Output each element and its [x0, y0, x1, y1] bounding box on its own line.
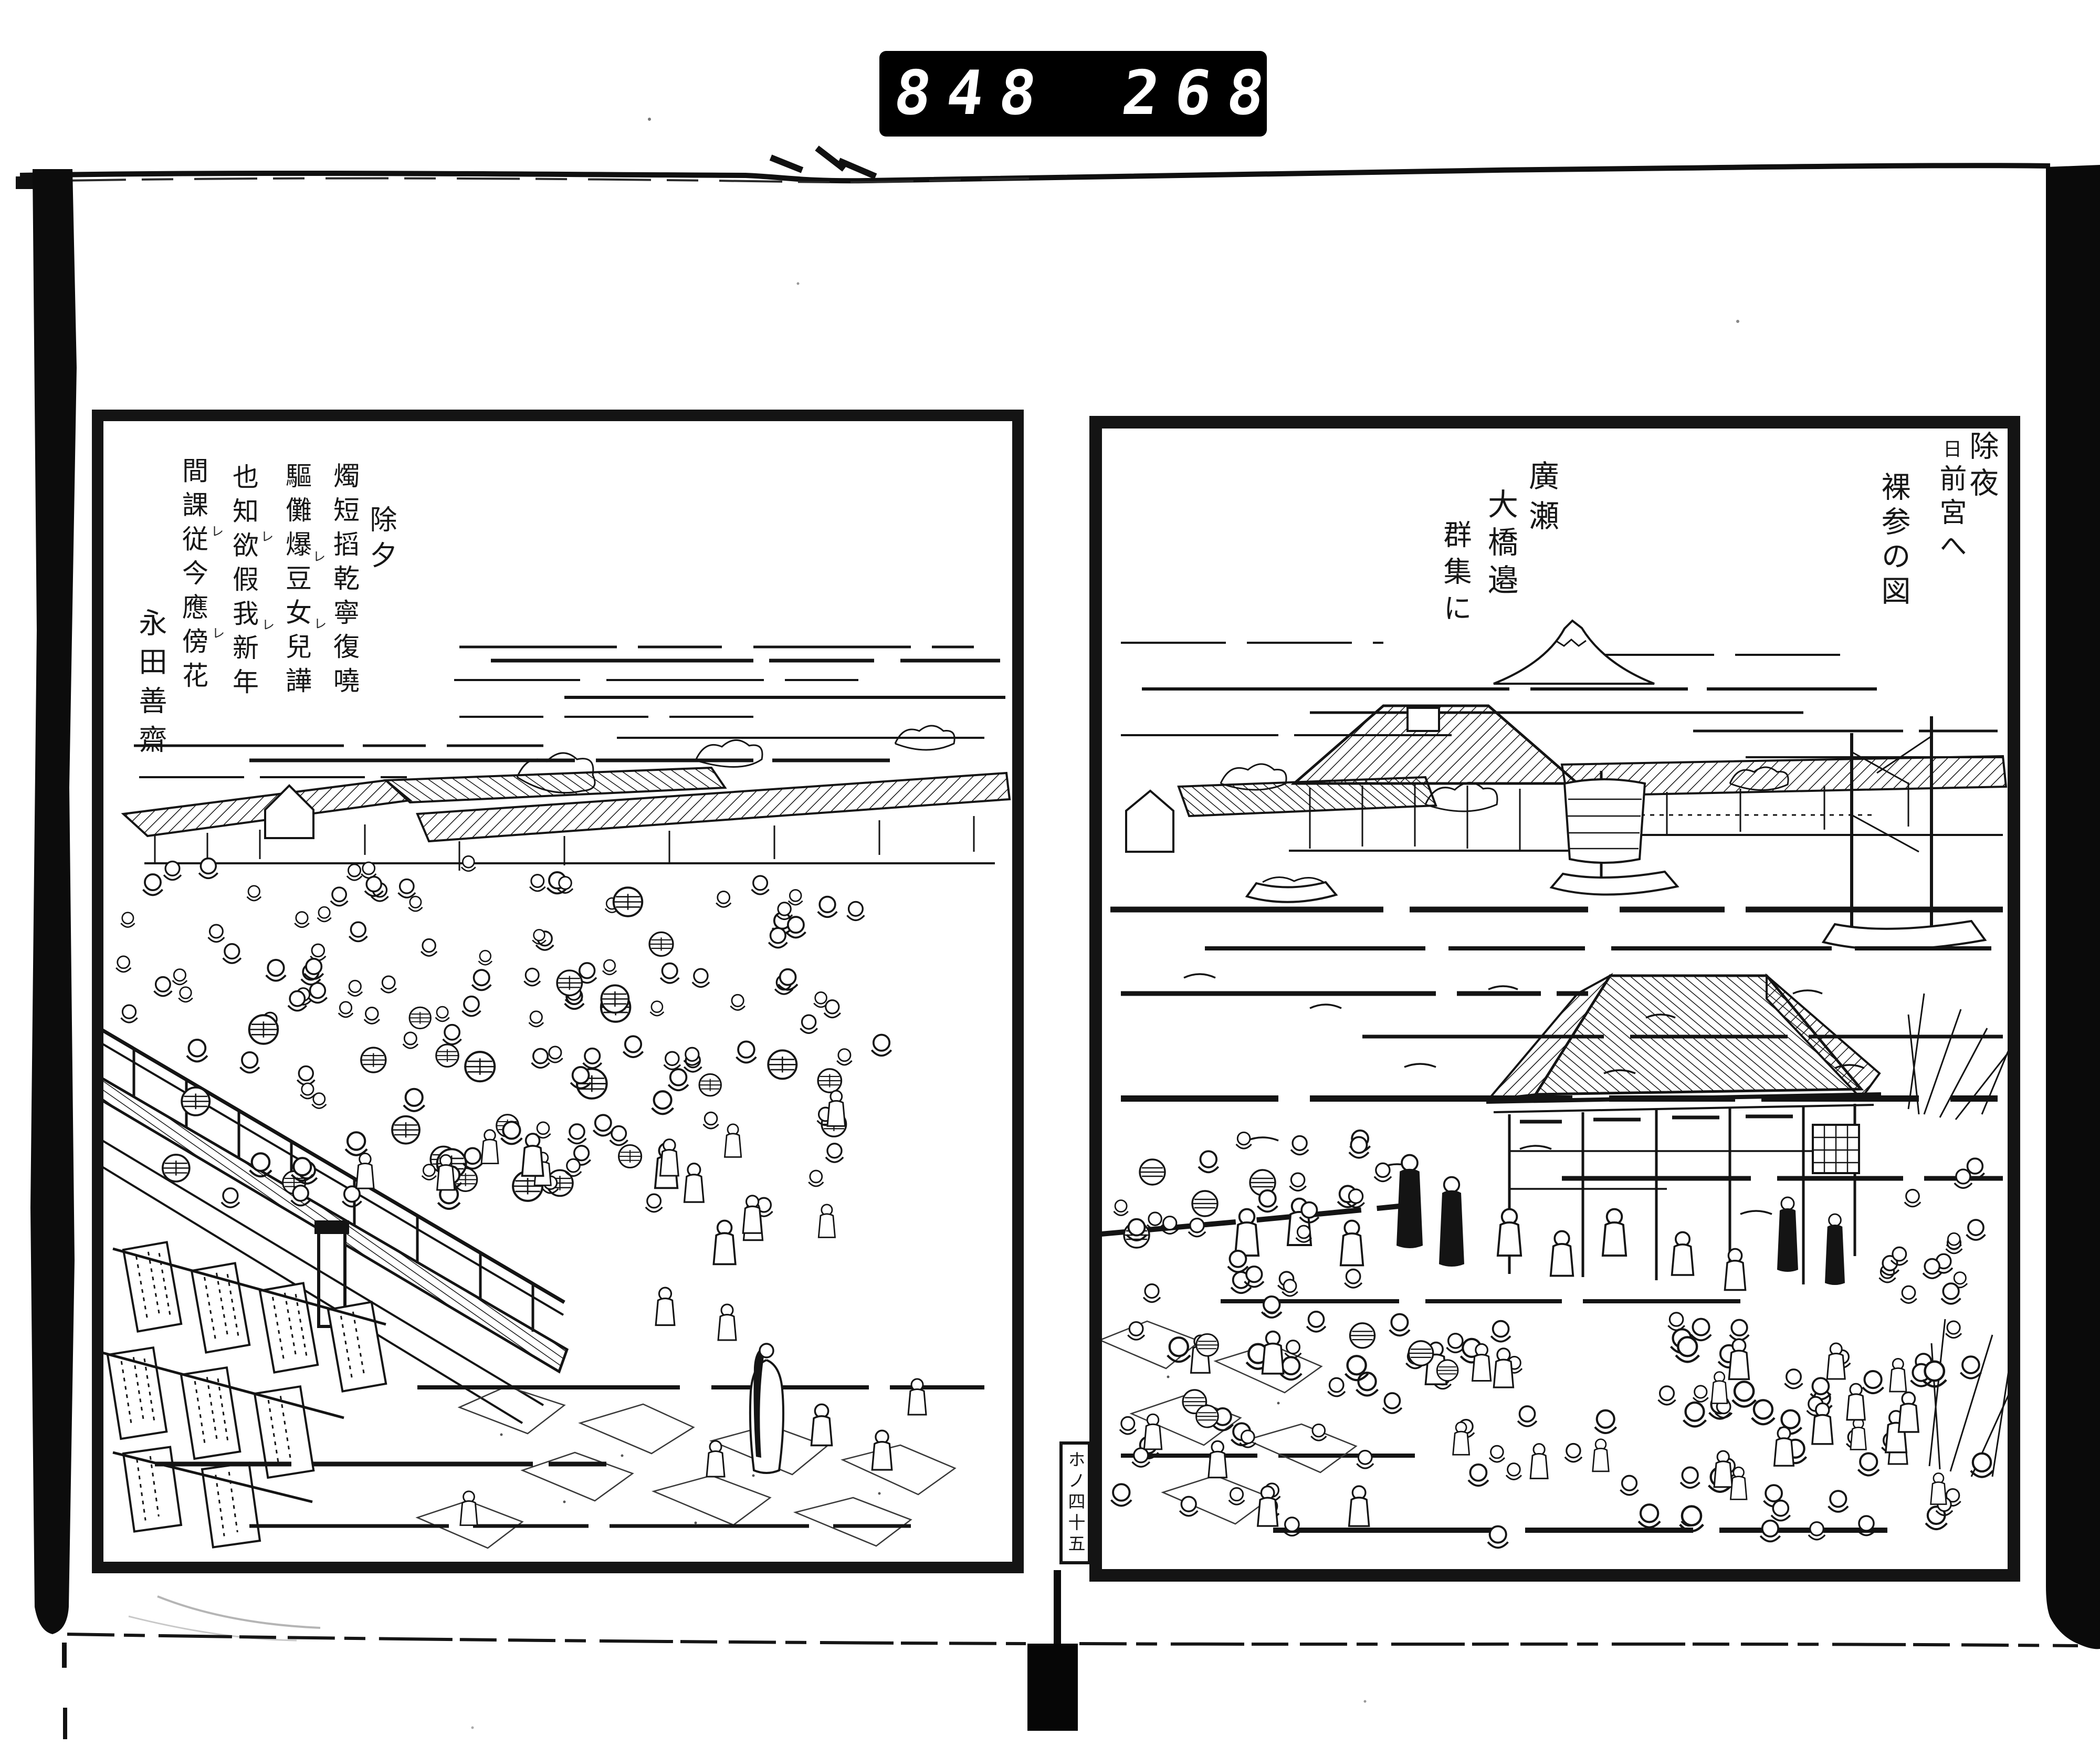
right-temple-compound — [1126, 706, 2006, 852]
kaeriten-mark: レ — [211, 521, 224, 539]
book-top-edge — [20, 165, 2050, 181]
book-scan-page: 848 268. — [0, 0, 2100, 1756]
kaeriten-mark: レ — [313, 546, 325, 565]
frame-counter-display: 848 268. — [881, 53, 1265, 135]
kaeriten-mark: レ — [261, 526, 274, 545]
right-caption-col3: 群集に — [1434, 520, 1476, 630]
kaeriten-mark: レ — [314, 613, 327, 632]
counter-right-digits: 268. — [1118, 57, 1337, 130]
right-title-col2: 日前宮へ — [1931, 439, 1970, 565]
right-caption-col1: 廣瀬 — [1519, 460, 1563, 540]
right-caption-col2: 大橋邉 — [1478, 488, 1522, 602]
page-marker-box: ホノ四十五 — [1059, 1441, 1091, 1564]
kaeriten-mark: レ — [212, 623, 225, 641]
left-water-horizon-lines — [134, 647, 1005, 777]
left-crowd — [116, 856, 891, 1264]
right-title-col2-head: 日 — [1940, 439, 1961, 464]
right-mount-fuji — [1494, 621, 1654, 684]
right-title-col2-rest: 前宮へ — [1935, 464, 1966, 565]
left-village-roofs — [123, 768, 1010, 871]
poem-line-4: 間課従今應傍花 — [174, 457, 212, 696]
book-right-edge — [2046, 165, 2100, 1649]
poem-line-2: 驅儺爆豆女兒譁 — [278, 462, 316, 701]
poem-signature: 永田善齋 — [130, 608, 171, 764]
left-bridge — [92, 1024, 567, 1423]
book-left-edge — [30, 169, 77, 1634]
spine-black-tab — [1027, 1644, 1078, 1731]
kaeriten-mark: レ — [262, 614, 275, 633]
moored-masts — [1823, 716, 1985, 949]
spine-line — [1054, 1570, 1061, 1647]
left-foreground-figures — [460, 1288, 926, 1525]
poem-line-3: 也知欲假我新年 — [225, 463, 262, 702]
poem-line-1: 燭短搯乾寧復嘵 — [325, 462, 363, 701]
counter-left-digits: 848 — [890, 57, 1056, 130]
page-marker-label: ホノ四十五 — [1063, 1450, 1088, 1555]
right-title-col3: 裸参の図 — [1872, 472, 1915, 610]
right-crowd — [1111, 1131, 1993, 1548]
poem-title: 除夕 — [361, 505, 401, 577]
